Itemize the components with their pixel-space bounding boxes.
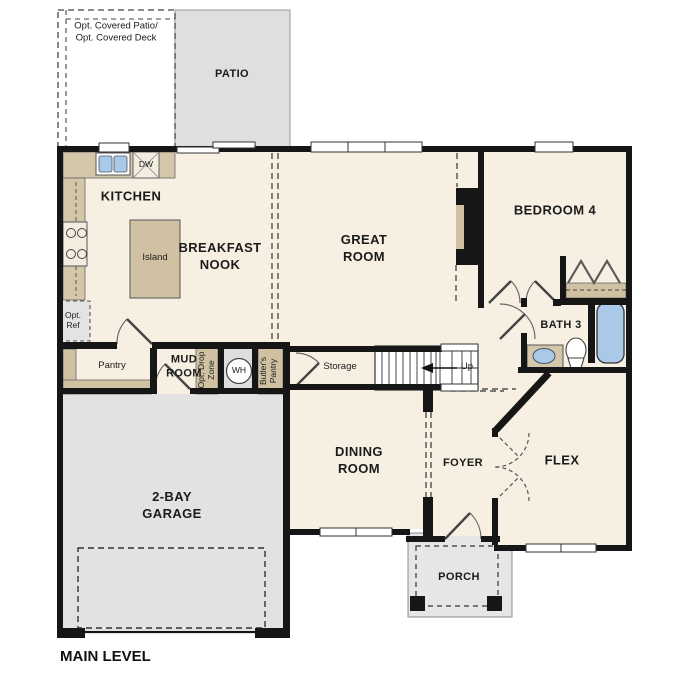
label-storage: Storage <box>323 361 356 373</box>
bathtub-icon <box>597 303 624 363</box>
label-up: Up <box>461 361 473 373</box>
label-pantry: Pantry <box>98 360 125 372</box>
label-foyer: FOYER <box>443 456 483 470</box>
label-great-room: GREAT ROOM <box>341 232 388 266</box>
label-dining-room: DINING ROOM <box>335 444 383 478</box>
label-breakfast-nook: BREAKFAST NOOK <box>178 240 261 274</box>
vanity-sink-icon <box>527 345 563 368</box>
floorplan-drawing <box>0 0 687 687</box>
closet-shelf <box>566 283 626 298</box>
floorplan: Opt. Covered Patio/ Opt. Covered Deck PA… <box>0 0 687 687</box>
label-garage: 2-BAY GARAGE <box>142 489 201 523</box>
label-butlers-pantry: Butler's Pantry <box>259 357 279 385</box>
label-kitchen: KITCHEN <box>101 189 162 206</box>
label-opt-covered-area: Opt. Covered Patio/ Opt. Covered Deck <box>74 21 157 46</box>
label-island: Island <box>142 252 167 264</box>
sink-icon <box>96 153 130 175</box>
label-flex: FLEX <box>545 453 580 470</box>
label-bedroom-4: BEDROOM 4 <box>514 203 596 220</box>
range-icon <box>63 222 87 266</box>
label-porch: PORCH <box>438 570 480 584</box>
label-opt-ref: Opt. Ref <box>65 311 81 331</box>
plan-title: MAIN LEVEL <box>60 648 151 665</box>
label-opt-drop-zone: Opt. Drop Zone <box>197 352 217 389</box>
label-water-heater: WH <box>232 366 246 376</box>
label-dishwasher: DW <box>139 160 153 170</box>
label-bath-3: BATH 3 <box>540 318 581 332</box>
label-patio: PATIO <box>215 67 249 81</box>
